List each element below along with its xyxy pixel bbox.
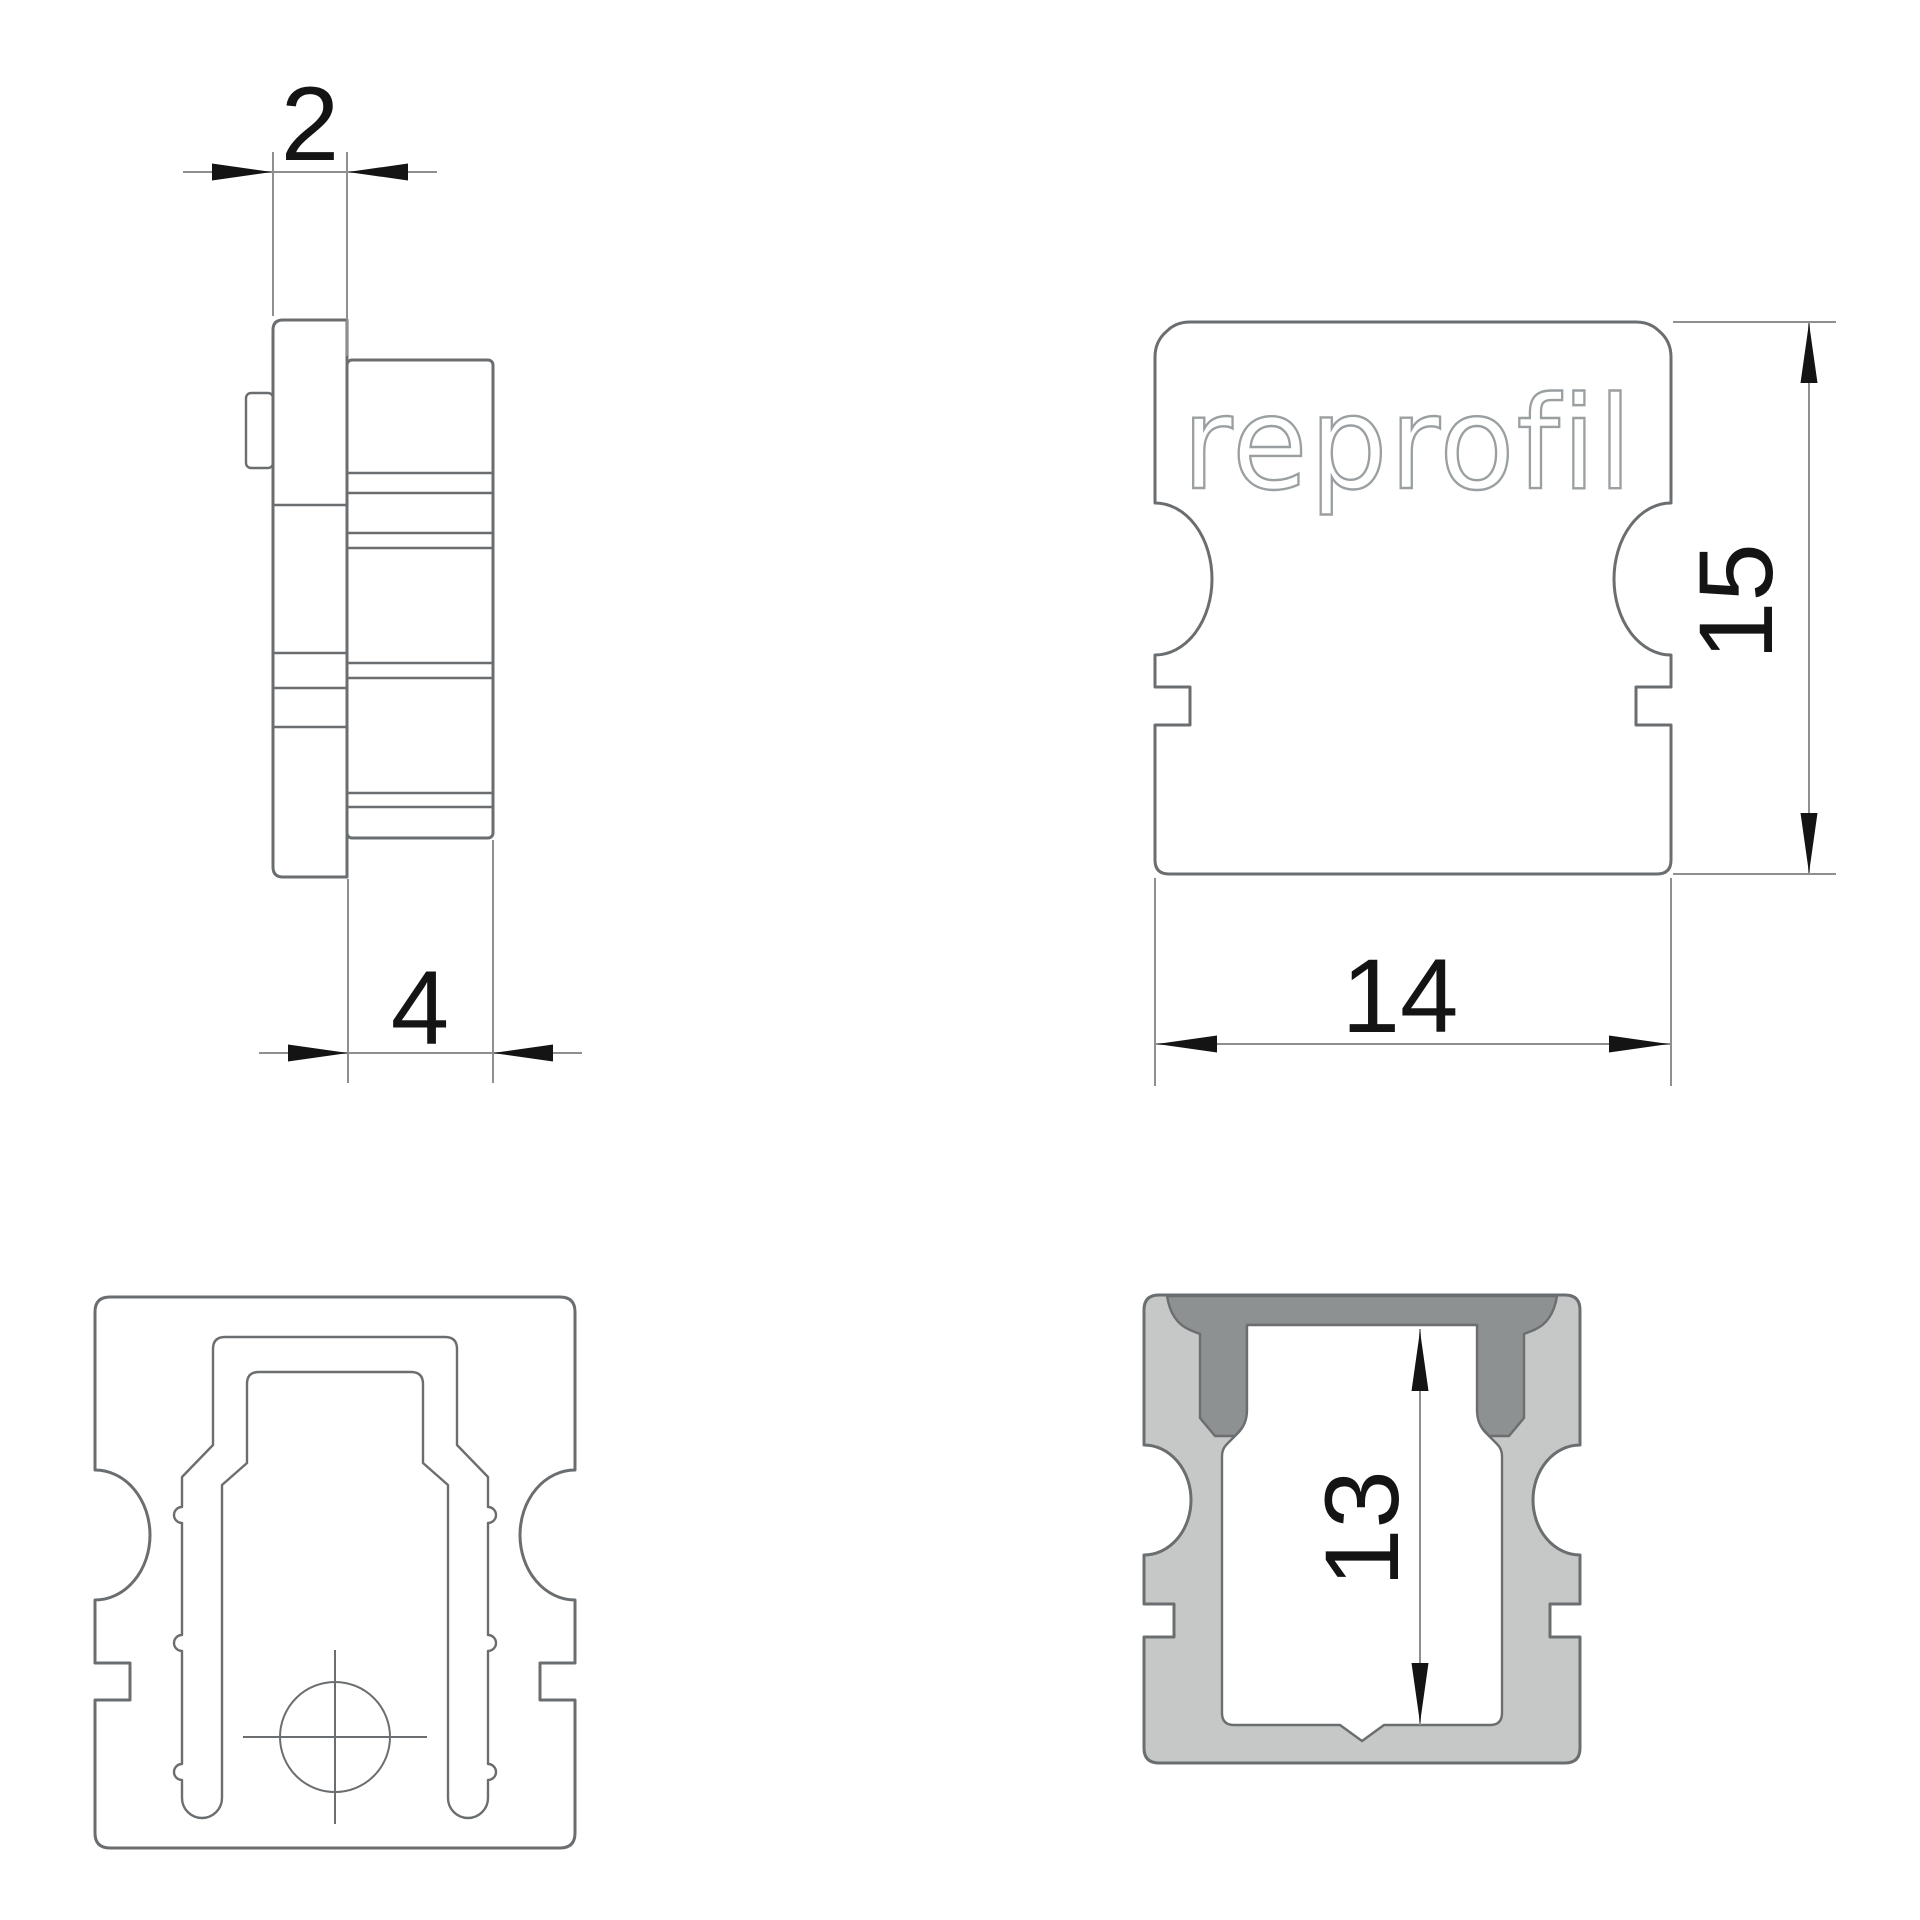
dim-arrow-down (1801, 813, 1818, 873)
plate-detail-lines (274, 505, 346, 727)
dim-label-14: 14 (1342, 938, 1459, 1055)
brand-logo-text: reprofil (1182, 370, 1634, 519)
screw-hole-crosshair (243, 1650, 427, 1824)
section-filled-view: 13 (1144, 1295, 1580, 1763)
dimension-cap-height: 15 (1673, 322, 1836, 874)
mount-tab (246, 393, 273, 468)
insert-detail-lines (348, 473, 492, 807)
dim-label-13: 13 (1304, 1470, 1421, 1587)
plate-outline (273, 320, 347, 877)
dim-arrow-left (212, 164, 272, 181)
dim-arrow-right (1609, 1036, 1669, 1053)
dim-arrow-up (1801, 323, 1818, 383)
dim-label-2: 2 (281, 66, 339, 183)
dim-label-4: 4 (391, 950, 449, 1067)
dimension-cap-width: 14 (1155, 878, 1671, 1086)
end-cap-drawing: 2 4 reprofil 15 14 (0, 0, 1920, 1920)
front-view: reprofil 15 14 (1155, 322, 1836, 1086)
dimension-plate-thickness: 2 (183, 66, 437, 356)
section-outline-view (95, 1297, 575, 1848)
dim-arrow-left (288, 1045, 348, 1062)
side-view: 2 4 (183, 66, 582, 1083)
dim-label-15: 15 (1678, 543, 1795, 660)
technical-drawing-page: 2 4 reprofil 15 14 (0, 0, 1920, 1920)
insert-outline (347, 360, 493, 838)
dim-arrow-right (348, 164, 408, 181)
dim-arrow-left (1157, 1036, 1217, 1053)
dim-arrow-right (493, 1045, 553, 1062)
